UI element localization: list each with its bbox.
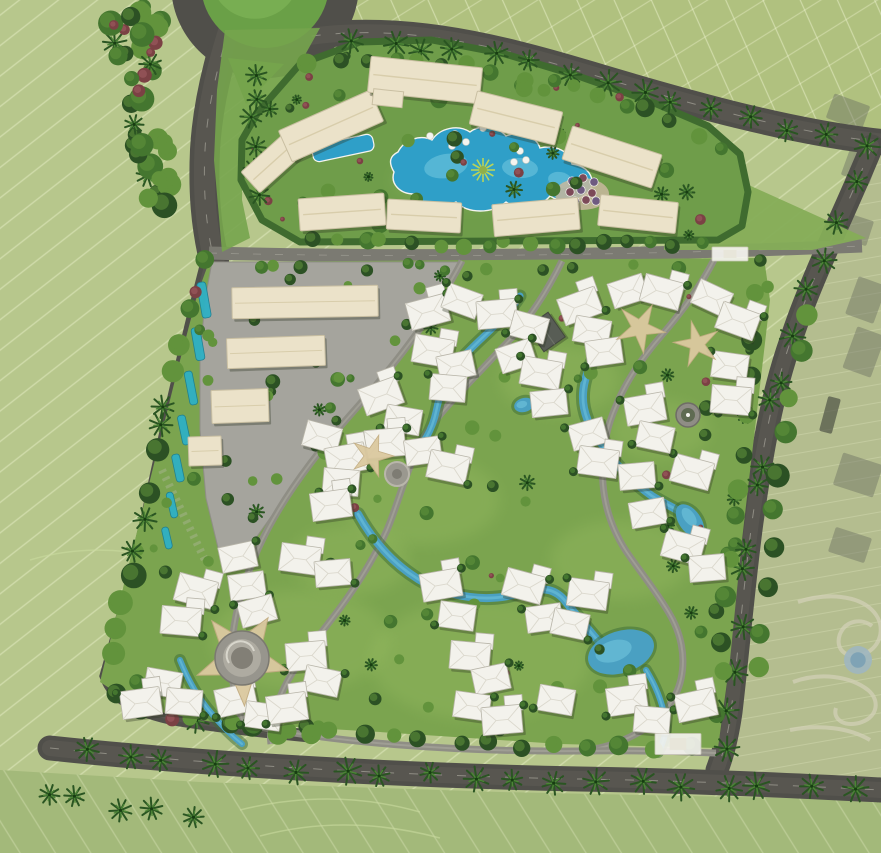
round-tree — [593, 679, 607, 693]
round-tree — [746, 284, 764, 302]
round-tree — [590, 87, 606, 103]
round-tree — [162, 360, 184, 382]
round-tree — [548, 74, 561, 87]
round-tree — [520, 496, 530, 506]
round-tree — [435, 240, 449, 254]
resort-building — [298, 193, 389, 235]
round-tree — [221, 493, 234, 506]
round-tree — [574, 375, 582, 383]
flowering-bush — [280, 217, 285, 222]
round-tree — [156, 134, 173, 151]
round-tree — [373, 495, 381, 503]
round-tree — [662, 113, 677, 128]
round-tree — [487, 480, 499, 492]
flowering-bush — [702, 377, 711, 386]
round-tree — [285, 104, 294, 113]
resort-building — [386, 199, 464, 236]
round-tree — [513, 740, 530, 757]
round-tree — [284, 274, 295, 285]
round-tree — [711, 632, 731, 652]
round-tree — [456, 239, 472, 255]
flowering-bush — [489, 573, 494, 578]
round-tree — [271, 473, 283, 485]
retail-strip-building — [232, 285, 381, 322]
round-tree — [483, 240, 496, 253]
round-tree — [267, 260, 279, 272]
flowering-bush — [695, 214, 706, 225]
round-tree — [766, 464, 790, 488]
round-tree — [570, 177, 583, 190]
round-tree — [394, 654, 404, 664]
retail-strip-building — [211, 388, 271, 426]
retail-strip-building — [188, 436, 224, 469]
round-tree — [333, 89, 345, 101]
round-tree — [538, 84, 551, 97]
round-tree — [346, 374, 354, 382]
round-tree — [523, 236, 538, 251]
round-tree — [420, 506, 434, 520]
round-tree — [409, 730, 426, 747]
round-tree — [297, 53, 317, 73]
round-tree — [331, 416, 341, 426]
round-tree — [715, 142, 728, 155]
round-tree — [108, 46, 127, 65]
round-tree — [168, 334, 190, 356]
flowering-bush — [514, 168, 524, 178]
round-tree — [633, 360, 647, 374]
round-tree — [635, 98, 654, 117]
round-tree — [567, 79, 580, 92]
purple-umbrella — [592, 197, 600, 205]
round-tree — [405, 236, 419, 250]
round-tree — [151, 171, 166, 186]
round-tree — [325, 402, 336, 413]
round-tree — [202, 330, 214, 342]
round-tree — [447, 131, 463, 147]
round-tree — [569, 237, 586, 254]
round-tree — [320, 722, 337, 739]
round-tree — [421, 608, 433, 620]
purple-umbrella — [582, 196, 590, 204]
round-tree — [108, 590, 133, 615]
flowering-bush — [132, 84, 145, 97]
round-tree — [496, 574, 505, 583]
round-tree — [294, 260, 308, 274]
retail-strip-building — [227, 335, 328, 371]
round-tree — [480, 263, 492, 275]
round-tree — [203, 556, 214, 567]
round-tree — [665, 239, 680, 254]
round-tree — [248, 476, 258, 486]
round-tree — [361, 264, 373, 276]
round-tree — [387, 728, 401, 742]
flowering-bush — [305, 73, 313, 81]
flowering-bush — [686, 294, 691, 299]
site-plan-svg — [0, 0, 881, 853]
round-tree — [764, 537, 784, 557]
round-tree — [567, 262, 578, 273]
round-tree — [130, 133, 154, 157]
round-tree — [403, 258, 414, 269]
round-tree — [159, 566, 172, 579]
round-tree — [455, 736, 470, 751]
round-tree — [150, 544, 158, 552]
flowering-bush — [146, 48, 155, 57]
white-umbrella — [523, 157, 530, 164]
round-tree — [462, 271, 472, 281]
round-tree — [368, 534, 377, 543]
round-tree — [415, 260, 425, 270]
round-tree — [334, 372, 344, 382]
round-tree — [465, 555, 480, 570]
round-tree — [749, 657, 769, 677]
flowering-bush — [460, 159, 467, 166]
round-tree — [187, 472, 201, 486]
round-tree — [161, 498, 171, 508]
round-tree — [331, 234, 343, 246]
purple-umbrella — [566, 188, 574, 196]
flowering-bush — [357, 158, 364, 165]
round-tree — [181, 299, 200, 318]
round-tree — [423, 702, 434, 713]
round-tree — [384, 615, 398, 629]
round-tree — [594, 644, 604, 654]
round-tree — [104, 618, 126, 640]
round-tree — [413, 282, 425, 294]
round-tree — [628, 259, 638, 269]
round-tree — [537, 264, 549, 276]
round-tree — [446, 169, 459, 182]
round-tree — [489, 430, 501, 442]
round-tree — [754, 254, 767, 267]
round-tree — [596, 234, 612, 250]
round-tree — [371, 232, 386, 247]
flowering-bush — [302, 102, 309, 109]
round-tree — [355, 540, 365, 550]
round-tree — [774, 421, 796, 443]
round-tree — [546, 182, 556, 192]
round-tree — [736, 447, 753, 464]
round-tree — [715, 662, 733, 680]
round-tree — [130, 22, 155, 47]
round-tree — [695, 626, 708, 639]
round-tree — [620, 99, 635, 114]
round-tree — [579, 739, 596, 756]
round-tree — [699, 429, 711, 441]
round-tree — [609, 736, 629, 756]
round-tree — [121, 563, 147, 589]
round-tree — [369, 693, 382, 706]
round-tree — [124, 71, 139, 86]
masterplan-rendering — [0, 0, 881, 853]
purple-umbrella — [588, 189, 596, 197]
round-tree — [203, 375, 214, 386]
round-tree — [146, 438, 169, 461]
round-tree — [509, 142, 519, 152]
round-tree — [301, 724, 321, 744]
white-umbrella — [463, 139, 470, 146]
gate-canopy — [670, 738, 687, 750]
purple-umbrella — [590, 178, 598, 186]
white-umbrella — [427, 133, 434, 140]
round-tree — [482, 64, 498, 80]
round-tree — [549, 238, 565, 254]
round-tree — [691, 128, 707, 144]
round-tree — [790, 340, 812, 362]
round-tree — [333, 53, 349, 69]
flowering-bush — [109, 20, 119, 30]
round-tree — [248, 513, 258, 523]
round-tree — [139, 189, 158, 208]
round-tree — [763, 499, 783, 519]
round-tree — [102, 642, 125, 665]
round-tree — [728, 479, 749, 500]
round-tree — [620, 235, 634, 249]
round-tree — [139, 482, 160, 503]
round-tree — [265, 374, 280, 389]
flowering-bush — [137, 68, 152, 83]
flowering-bush — [615, 93, 624, 102]
round-tree — [796, 304, 817, 325]
round-tree — [356, 725, 375, 744]
round-tree — [715, 586, 736, 607]
round-tree — [465, 420, 479, 434]
round-tree — [545, 736, 562, 753]
gate-canopy — [724, 250, 737, 258]
round-tree — [750, 624, 770, 644]
round-tree — [390, 335, 401, 346]
round-tree — [517, 72, 534, 89]
round-tree — [402, 134, 415, 147]
round-tree — [727, 506, 745, 524]
round-tree — [255, 261, 268, 274]
round-tree — [195, 250, 214, 269]
round-tree — [644, 236, 657, 249]
round-tree — [440, 265, 450, 275]
white-umbrella — [511, 159, 518, 166]
flowering-bush — [190, 286, 202, 298]
round-tree — [780, 389, 798, 407]
round-tree — [758, 577, 778, 597]
round-tree — [696, 237, 708, 249]
